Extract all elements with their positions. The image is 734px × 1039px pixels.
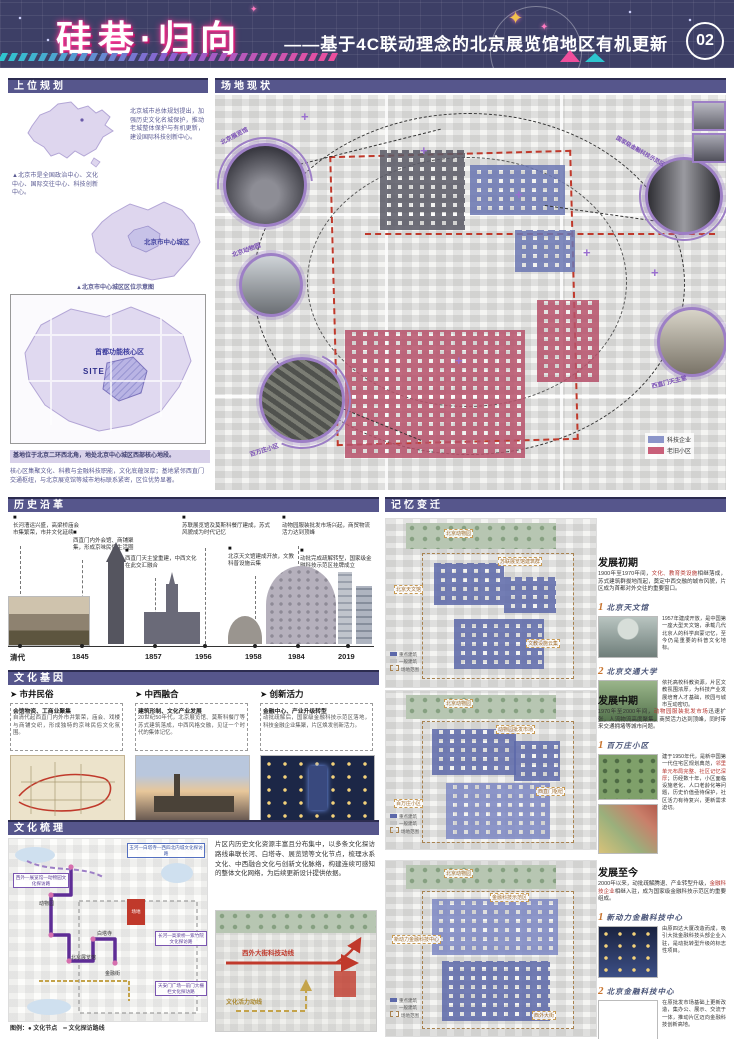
legend-swatch bbox=[390, 1005, 397, 1009]
legend-swatch-red bbox=[648, 447, 664, 454]
stage-heading: 发展至今 bbox=[598, 864, 726, 879]
culture-sorting-paragraph: 片区内历史文化资源丰富且分布集中，以多条文化探访路线串联长河、白塔寺、展览馆等文… bbox=[215, 840, 375, 879]
item-number: 1 bbox=[598, 601, 604, 613]
timeline-event: ■苏联展览馆及莫斯科餐厅建成，苏式风貌成为时代记忆 bbox=[182, 515, 274, 537]
map-label: 动物园批发市场 bbox=[496, 725, 535, 734]
item-row: 由原四达大厦改造而成，吸引大批金融科技头部企业入驻，是动批转型升级的标志性项目。 bbox=[598, 926, 726, 978]
event-text: 西直门天主堂重建，中西文化在此交汇融合 bbox=[125, 556, 197, 569]
historic-map-image bbox=[10, 755, 125, 821]
gene-textbox: 金融中心、产业升级转型 动批疏解后，国家级金融科技示范区落地，科技金融企业集聚，… bbox=[260, 703, 373, 751]
timeline-year: 1857 bbox=[145, 652, 162, 661]
legend-swatch bbox=[390, 665, 399, 671]
legend-swatch bbox=[390, 821, 397, 825]
section-title-memory: 记忆变迁 bbox=[385, 497, 726, 512]
map-node-label: 动物园 bbox=[39, 901, 54, 908]
gene-heading-text: 中西融合 bbox=[144, 689, 178, 699]
canal-photo bbox=[8, 596, 90, 646]
legend-swatch bbox=[390, 814, 397, 818]
legend-swatch bbox=[390, 659, 397, 663]
item-text: 建于1950年代，是新中国第一代住宅区规划典范，邻里单元布局完整、社区记忆深厚；… bbox=[662, 754, 726, 854]
item-number: 2 bbox=[598, 985, 604, 997]
legend-row: 一般建筑 bbox=[390, 1004, 419, 1011]
map-label: 北京天文馆 bbox=[394, 585, 423, 594]
gene-heading-text: 市井民俗 bbox=[19, 689, 53, 699]
timeline-year: 1845 bbox=[72, 652, 89, 661]
item-row: 在原批发市场基础上更新改造，集办公、展示、交流于一体，推动片区迈向金融科技创新高… bbox=[598, 1000, 726, 1039]
event-marker: ■ bbox=[228, 546, 294, 554]
item-label: 北京交通大学 bbox=[607, 667, 658, 676]
site-area-red: 场地 bbox=[127, 899, 145, 925]
building-cluster-blue bbox=[432, 729, 516, 775]
item-text: 在原批发市场基础上更新改造，集办公、展示、交流于一体，推动片区迈向金融科技创新高… bbox=[662, 1000, 726, 1039]
memory-map-early: 北京动物园 苏联展览馆建筑群 北京天文馆 文教设施云集 重点建筑 一般建筑 场地… bbox=[385, 518, 597, 688]
gene-column-innovation: ➤ 创新活力 金融中心、产业升级转型 动批疏解后，国家级金融科技示范区落地，科技… bbox=[260, 688, 373, 821]
moscow-restaurant-photo bbox=[135, 755, 250, 821]
gene-heading-text: 创新活力 bbox=[269, 689, 303, 699]
church-spire bbox=[106, 542, 126, 562]
legend-label: 场地范围 bbox=[401, 1013, 419, 1018]
item-heading: 1百万庄小区 bbox=[598, 735, 726, 753]
callout-label: 西直门天主堂 bbox=[650, 373, 687, 390]
item-text-part: ；历经数十年，小区面临设施老化、人口老龄化等问题，历史价值亟待保护，社区活力有待… bbox=[662, 776, 726, 811]
core-area-label: 首都功能核心区 bbox=[95, 347, 144, 357]
photo-stack bbox=[598, 754, 658, 854]
para-text: 1970年至2000年间， bbox=[598, 709, 654, 715]
location-highlight: 基地位于北京二环西北角，地处北京中心城区西部核心地段。 bbox=[10, 450, 210, 463]
gene-heading: ➤ 中西融合 bbox=[135, 688, 248, 700]
para-text: 相继入驻，成为国家级金融科技示范区的重要组成。 bbox=[598, 889, 726, 903]
zoo-park bbox=[406, 523, 556, 549]
timeline-year: 1984 bbox=[288, 652, 305, 661]
mound-silhouette bbox=[228, 616, 262, 644]
timeline-dot bbox=[203, 644, 207, 648]
gene-heading: ➤ 创新活力 bbox=[260, 688, 373, 700]
map-node-label: 白塔寺 bbox=[97, 931, 112, 938]
item-text: 1957年建成开放，是中国第一座大型天文馆，承载几代北京人的科学启蒙记忆，至今仍… bbox=[662, 616, 726, 658]
route-label-box: 西外—展览馆—动物园文化探访路 bbox=[13, 873, 69, 888]
church-tower-silhouette bbox=[108, 560, 124, 644]
building-cluster-red bbox=[537, 300, 599, 382]
map-label: 北京动物园 bbox=[444, 529, 473, 538]
stage-paragraph: 1900年至1970年间，文化、教育类设施相继落成，苏式建筑群拔地而起，奠定中西… bbox=[598, 571, 726, 594]
item-heading: 1北京天文馆 bbox=[598, 597, 726, 615]
timeline-dot bbox=[253, 644, 257, 648]
legend-label: 一般建筑 bbox=[399, 821, 417, 826]
memory-map-legend: 重点建筑 一般建筑 场地范围 bbox=[390, 651, 419, 674]
timeline-dot bbox=[18, 644, 22, 648]
timeline-event: ■长河漕运兴盛，高梁桥庙会市集繁荣，市井文化延续 bbox=[13, 515, 79, 537]
tower-silhouette bbox=[356, 586, 372, 644]
event-text: 长河漕运兴盛，高梁桥庙会市集繁荣，市井文化延续 bbox=[13, 523, 79, 536]
baiwanzhuang-plan-photo bbox=[598, 804, 658, 854]
map-label: 文教设施云集 bbox=[526, 639, 560, 648]
china-map bbox=[16, 96, 124, 172]
map-node-label: 北京展览馆 bbox=[71, 955, 96, 962]
triangle-decoration bbox=[585, 53, 605, 62]
exhibition-gate-silhouette bbox=[142, 572, 202, 644]
poster-board: 硅巷·归向 ✦ ✦ ✦ ——基于4C联动理念的北京展览馆地区有机更新 02 上位… bbox=[0, 0, 734, 1039]
triangle-decoration bbox=[560, 50, 580, 62]
gene-heading: ➤ 市井民俗 bbox=[10, 688, 123, 700]
section-title-site-status: 场地现状 bbox=[215, 78, 726, 93]
planetarium-dome-silhouette bbox=[266, 566, 336, 644]
building-cluster-blue bbox=[432, 899, 558, 955]
gene-column-fusion: ➤ 中西融合 建筑形制、文化产业发展 20世纪50年代，北京展览馆、莫斯科餐厅等… bbox=[135, 688, 248, 821]
event-marker: ■ bbox=[182, 515, 274, 523]
item-label: 北京天文馆 bbox=[607, 603, 650, 612]
timeline-event: ■动物园服装批发市场兴起，商贸物流活力达到顶峰 bbox=[282, 515, 372, 537]
stage-paragraph: 2000年以来，动批疏解腾退、产业转型升级，金融科技企业相继入驻，成为国家级金融… bbox=[598, 881, 726, 904]
para-text-red: 文化、教育类设施 bbox=[652, 571, 698, 577]
photo-tower bbox=[309, 766, 327, 810]
legend-label: 一般建筑 bbox=[399, 659, 417, 664]
new-power-center-photo bbox=[598, 926, 658, 978]
legend-swatch bbox=[390, 652, 397, 656]
gene-lead: 建筑形制、文化产业发展 bbox=[138, 706, 245, 715]
timeline-year: 1956 bbox=[195, 652, 212, 661]
legend-swatch bbox=[390, 1011, 399, 1017]
legend-label: 场地范围 bbox=[401, 829, 419, 834]
section-title-upper-planning: 上位规划 bbox=[8, 78, 208, 93]
legend-row: 场地范围 bbox=[390, 1011, 419, 1019]
beijing-note: ▲北京市是全国政治中心、文化中心、国际交往中心、科技创新中心。 bbox=[12, 172, 98, 198]
stage-heading: 发展中期 bbox=[598, 692, 726, 707]
header-dash-strip bbox=[0, 53, 342, 61]
item-heading: 2北京金融科技中心 bbox=[598, 981, 726, 999]
sparkle-icon: ✦ bbox=[508, 8, 523, 29]
gene-textbox: 建筑形制、文化产业发展 20世纪50年代，北京展览馆、莫斯科餐厅等苏式建筑落成，… bbox=[135, 703, 248, 751]
legend-label: 老旧小区 bbox=[667, 446, 691, 455]
plus-marker: + bbox=[583, 245, 591, 260]
building-cluster-blue bbox=[504, 577, 556, 613]
stage-now: 发展至今 2000年以来，动批疏解腾退、产业转型升级，金融科技企业相继入驻，成为… bbox=[598, 864, 726, 1039]
district-map-frame: 首都功能核心区 SITE bbox=[10, 294, 206, 444]
timeline-year: 清代 bbox=[10, 652, 25, 663]
legend-label: 重点建筑 bbox=[399, 814, 417, 819]
gene-body: 动批疏解后，国家级金融科技示范区落地，科技金融企业集聚，片区焕发创新活力。 bbox=[263, 715, 370, 730]
map-label: 百万庄小区 bbox=[394, 799, 423, 808]
callout-photo-church bbox=[657, 307, 726, 377]
stage-mid: 发展中期 1970年至2000年间，动物园服装批发市场迅速扩张，人流物流高度聚集… bbox=[598, 692, 726, 857]
legend-row: 重点建筑 bbox=[390, 997, 419, 1004]
timeline-connector bbox=[205, 548, 206, 644]
item-text: 由原四达大厦改造而成，吸引大批金融科技头部企业入驻，是动批转型升级的标志性项目。 bbox=[662, 926, 726, 978]
timeline-event: ■北京天文馆建成开放，文教科普设施云集 bbox=[228, 546, 294, 568]
map-label: 西外大街 bbox=[532, 1011, 556, 1020]
legend-swatch bbox=[390, 998, 397, 1002]
item-row: 建于1950年代，是新中国第一代住宅区规划典范，邻里单元布局完整、社区记忆深厚；… bbox=[598, 754, 726, 854]
legend-row: 重点建筑 bbox=[390, 651, 419, 658]
timeline-axis bbox=[8, 646, 374, 647]
map-label: 西直门枢纽 bbox=[536, 787, 565, 796]
legend-row: 科技企业 bbox=[648, 435, 691, 444]
item-number: 1 bbox=[598, 911, 604, 923]
timeline-event: ■西直门天主堂重建，中西文化在此交汇融合 bbox=[125, 548, 197, 570]
building-cluster-blue bbox=[514, 741, 560, 781]
legend-row: 一般建筑 bbox=[390, 658, 419, 665]
legend-row: 老旧小区 bbox=[648, 446, 691, 455]
building-cluster-dark bbox=[380, 150, 465, 230]
item-number: 1 bbox=[598, 739, 604, 751]
memory-map-legend: 重点建筑 一般建筑 场地范围 bbox=[390, 997, 419, 1020]
stage-paragraph: 1970年至2000年间，动物园服装批发市场迅速扩张，人流物流高度聚集，商贸活力… bbox=[598, 709, 726, 732]
beijing-map-label: 北京市中心城区 bbox=[144, 236, 190, 246]
section-title-history: 历史沿革 bbox=[8, 497, 379, 512]
building-cluster-blue bbox=[446, 783, 550, 839]
baiwanzhuang-aerial-photo bbox=[598, 754, 658, 800]
memory-map-mid: 北京动物园 动物园批发市场 百万庄小区 西直门枢纽 重点建筑 一般建筑 场地范围 bbox=[385, 690, 597, 850]
timeline-dot bbox=[153, 644, 157, 648]
timeline-year: 1958 bbox=[245, 652, 262, 661]
event-marker: ■ bbox=[300, 548, 374, 556]
planetarium-photo bbox=[598, 616, 658, 658]
route-label-box: 天安门广场—前门大栅栏文化探访路 bbox=[155, 981, 207, 996]
event-marker: ■ bbox=[282, 515, 372, 523]
legend-label: 一般建筑 bbox=[399, 1005, 417, 1010]
site-aerial-map: 北京展览馆 北京动物园 百万庄小区 国家级金融科技示范区 西直门天主堂 + + … bbox=[215, 95, 726, 490]
item-heading: 2北京交通大学 bbox=[598, 661, 726, 679]
gene-body: 20世纪50年代，北京展览馆、莫斯科餐厅等苏式建筑落成，中西风格交融，见证一个时… bbox=[138, 715, 245, 738]
flow-arrows bbox=[216, 911, 376, 1031]
stage-heading: 发展初期 bbox=[598, 554, 726, 569]
legend-label: 场地范围 bbox=[401, 667, 419, 672]
event-text: 动物园服装批发市场兴起，商贸物流活力达到顶峰 bbox=[282, 523, 370, 536]
event-marker: ■ bbox=[73, 530, 139, 538]
item-heading: 1新动力金融科技中心 bbox=[598, 907, 726, 925]
sparkle-icon: ✦ bbox=[250, 4, 258, 15]
fintech-center-photo bbox=[598, 1000, 658, 1039]
photo-building bbox=[154, 796, 234, 812]
building-cluster-red bbox=[345, 330, 525, 458]
gene-lead: 会馆物资、工商业聚集 bbox=[13, 706, 120, 715]
event-marker: ■ bbox=[125, 548, 197, 556]
gene-column-folk: ➤ 市井民俗 会馆物资、工商业聚集 自清代起西直门内外市井繁荣，庙会、戏楼与商铺… bbox=[10, 688, 123, 821]
timeline-dot bbox=[80, 644, 84, 648]
plus-marker: + bbox=[301, 109, 309, 124]
site-map-legend: 科技企业 老旧小区 bbox=[645, 433, 694, 459]
legend-label: 重点建筑 bbox=[399, 652, 417, 657]
location-note: 核心区集聚文化、科教与金融科技职能，文化底蕴深厚；基地紧邻西直门交通枢纽，与北京… bbox=[10, 468, 204, 485]
event-marker: ■ bbox=[13, 515, 79, 523]
map-label: 北京动物园 bbox=[444, 869, 473, 878]
site-label: SITE bbox=[83, 367, 105, 376]
timeline-dot bbox=[346, 644, 350, 648]
para-text-red: 动物园服装批发市场 bbox=[654, 709, 709, 715]
timeline-dot bbox=[296, 644, 300, 648]
historic-map-lines bbox=[11, 756, 124, 820]
district-map bbox=[11, 295, 205, 443]
plus-marker: + bbox=[651, 265, 659, 280]
building-cluster-blue bbox=[434, 563, 504, 605]
gene-textbox: 会馆物资、工商业聚集 自清代起西直门内外市井繁荣，庙会、戏楼与商铺交织，形成独特… bbox=[10, 703, 123, 751]
event-text: 北京天文馆建成开放，文教科普设施云集 bbox=[228, 554, 294, 567]
culture-route-map: 场地 西外—展览馆—动物园文化探访路 玉河—白塔寺—西四北内城文化探访路 长河—… bbox=[8, 838, 208, 1022]
building-cluster-blue bbox=[515, 230, 575, 272]
route-label-box: 长河—高梁桥—紫竹院文化探访路 bbox=[155, 931, 207, 946]
map-label: 新动力金融科技中心 bbox=[392, 935, 441, 944]
memory-map-now: 北京动物园 金融科技示范区 新动力金融科技中心 西外大街 重点建筑 一般建筑 场… bbox=[385, 860, 597, 1037]
legend-label: 科技企业 bbox=[667, 435, 691, 444]
memory-map-legend: 重点建筑 一般建筑 场地范围 bbox=[390, 813, 419, 836]
inset-photo-small bbox=[692, 133, 726, 163]
zoo-park bbox=[406, 865, 556, 889]
china-map-caption: 北京城市总体规划提出，加强历史文化名城保护，推动老城整体保护与有机更新，建设国际… bbox=[130, 108, 204, 143]
inset-photo-small bbox=[692, 101, 726, 131]
para-text: 1900年至1970年间， bbox=[598, 571, 652, 577]
section-title-culture-gene: 文化基因 bbox=[8, 670, 379, 685]
item-label: 北京金融科技中心 bbox=[607, 987, 675, 996]
item-number: 2 bbox=[598, 665, 604, 677]
item-label: 百万庄小区 bbox=[607, 741, 650, 750]
culture-map-legend: 图例：● 文化节点 ━ 文化探访路线 bbox=[10, 1023, 105, 1032]
callout-label: 百万庄小区 bbox=[248, 441, 279, 459]
route-label-box: 玉河—白塔寺—西四北内城文化探访路 bbox=[127, 843, 205, 858]
night-aerial-photo bbox=[260, 755, 375, 821]
legend-row: 重点建筑 bbox=[390, 813, 419, 820]
page-number-badge: 02 bbox=[686, 22, 724, 60]
plus-marker: + bbox=[455, 353, 463, 368]
legend-label: 重点建筑 bbox=[399, 998, 417, 1003]
map-label: 苏联展览馆建筑群 bbox=[498, 557, 542, 566]
item-row: 1957年建成开放，是中国第一座大型天文馆，承载几代北京人的科学启蒙记忆，至今仍… bbox=[598, 616, 726, 658]
map-node-label: 金融街 bbox=[105, 971, 120, 978]
callout-photo-zoo-gate bbox=[239, 253, 303, 317]
plus-marker: + bbox=[420, 143, 428, 158]
section-title-culture-sorting: 文化梳理 bbox=[8, 820, 379, 835]
gene-body: 自清代起西直门内外市井繁荣，庙会、戏楼与商铺交织，形成独特的京味民俗文化氛围。 bbox=[13, 715, 120, 738]
timeline-year: 2019 bbox=[338, 652, 355, 661]
legend-swatch-blue bbox=[648, 436, 664, 443]
gene-lead: 金融中心、产业升级转型 bbox=[263, 706, 370, 715]
map-label: 北京动物园 bbox=[444, 699, 473, 708]
zoo-park bbox=[406, 695, 556, 719]
tower-silhouette bbox=[338, 572, 352, 644]
para-text: 2000年以来，动批疏解腾退、产业转型升级， bbox=[598, 881, 709, 887]
flow-diagram: 西外大街科技动线 文化活力动线 bbox=[215, 910, 377, 1032]
event-text: 苏联展览馆及莫斯科餐厅建成，苏式风貌成为时代记忆 bbox=[182, 523, 270, 536]
poster-subtitle: ——基于4C联动理念的北京展览馆地区有机更新 bbox=[284, 30, 668, 55]
legend-row: 场地范围 bbox=[390, 665, 419, 673]
legend-row: 场地范围 bbox=[390, 827, 419, 835]
legend-row: 一般建筑 bbox=[390, 820, 419, 827]
plus-marker: + bbox=[515, 187, 523, 202]
map-label: 金融科技示范区 bbox=[490, 893, 529, 902]
header: 硅巷·归向 ✦ ✦ ✦ ——基于4C联动理念的北京展览馆地区有机更新 02 bbox=[0, 0, 734, 68]
flow-label-yellow: 文化活力动线 bbox=[226, 997, 262, 1006]
legend-swatch bbox=[390, 827, 399, 833]
item-label: 新动力金融科技中心 bbox=[607, 913, 684, 922]
beijing-map-caption: ▲北京市中心城区区位示意图 bbox=[40, 284, 190, 293]
flow-label-red: 西外大街科技动线 bbox=[242, 947, 294, 957]
